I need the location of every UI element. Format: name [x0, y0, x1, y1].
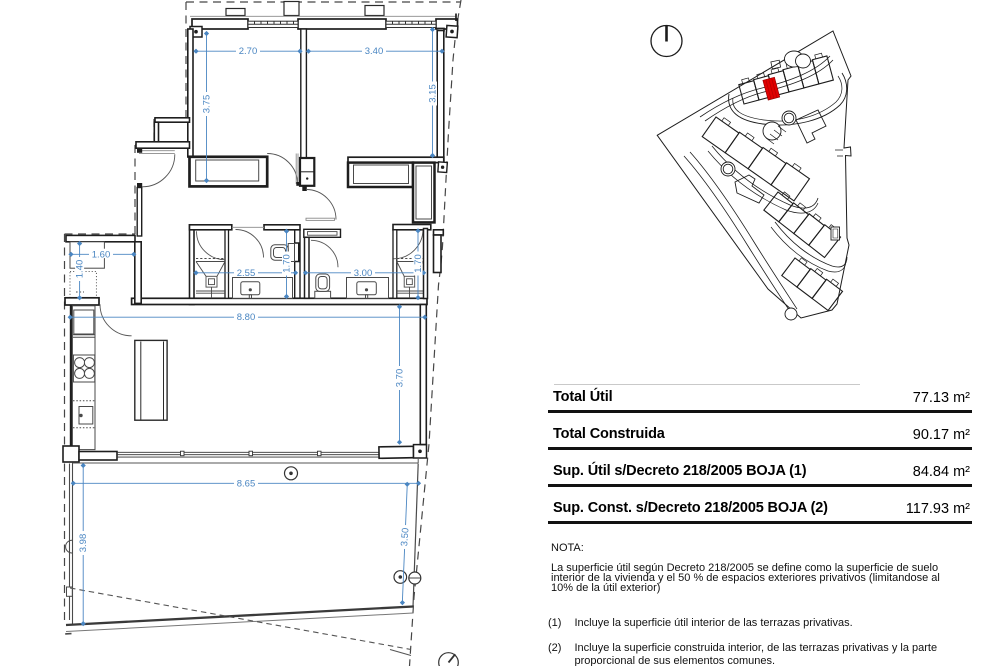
svg-text:1.70: 1.70 [282, 254, 293, 273]
svg-text:8.80: 8.80 [237, 312, 256, 323]
svg-text:2.55: 2.55 [237, 268, 256, 279]
svg-text:8.65: 8.65 [237, 478, 256, 489]
svg-text:3.50: 3.50 [399, 527, 411, 546]
svg-text:1.40: 1.40 [75, 260, 86, 279]
svg-text:3.75: 3.75 [202, 95, 213, 114]
svg-text:3.98: 3.98 [78, 534, 89, 553]
svg-text:3.15: 3.15 [428, 84, 439, 103]
svg-text:1.70: 1.70 [413, 254, 424, 273]
svg-text:3.40: 3.40 [365, 46, 384, 57]
svg-text:3.70: 3.70 [395, 369, 406, 388]
svg-text:3.00: 3.00 [354, 268, 373, 279]
svg-text:1.60: 1.60 [92, 249, 111, 260]
svg-text:2.70: 2.70 [239, 46, 258, 57]
